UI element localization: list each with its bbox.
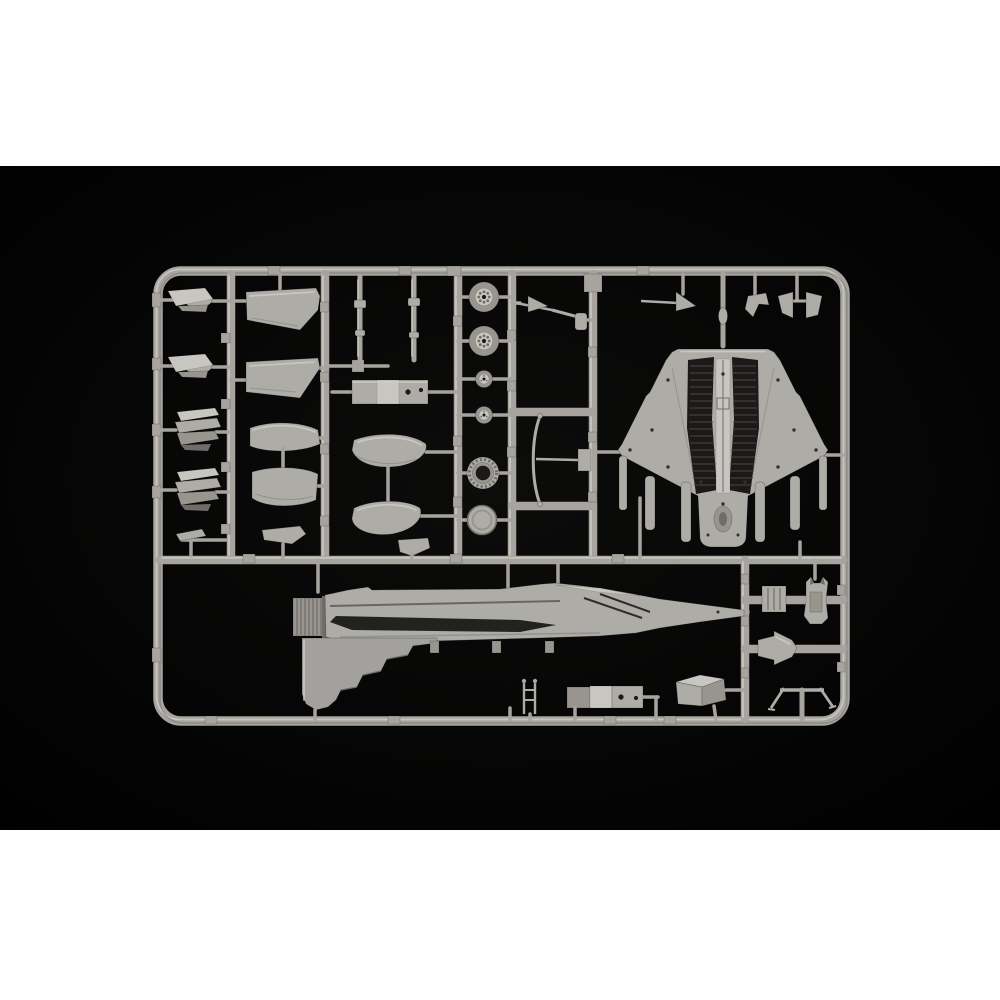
photo-background [0, 166, 1000, 830]
sprue-photo [0, 0, 1000, 1000]
wingtip-rail-right [819, 456, 827, 510]
exhaust-nozzle [293, 596, 330, 638]
wingtip-rail-left [619, 456, 627, 510]
